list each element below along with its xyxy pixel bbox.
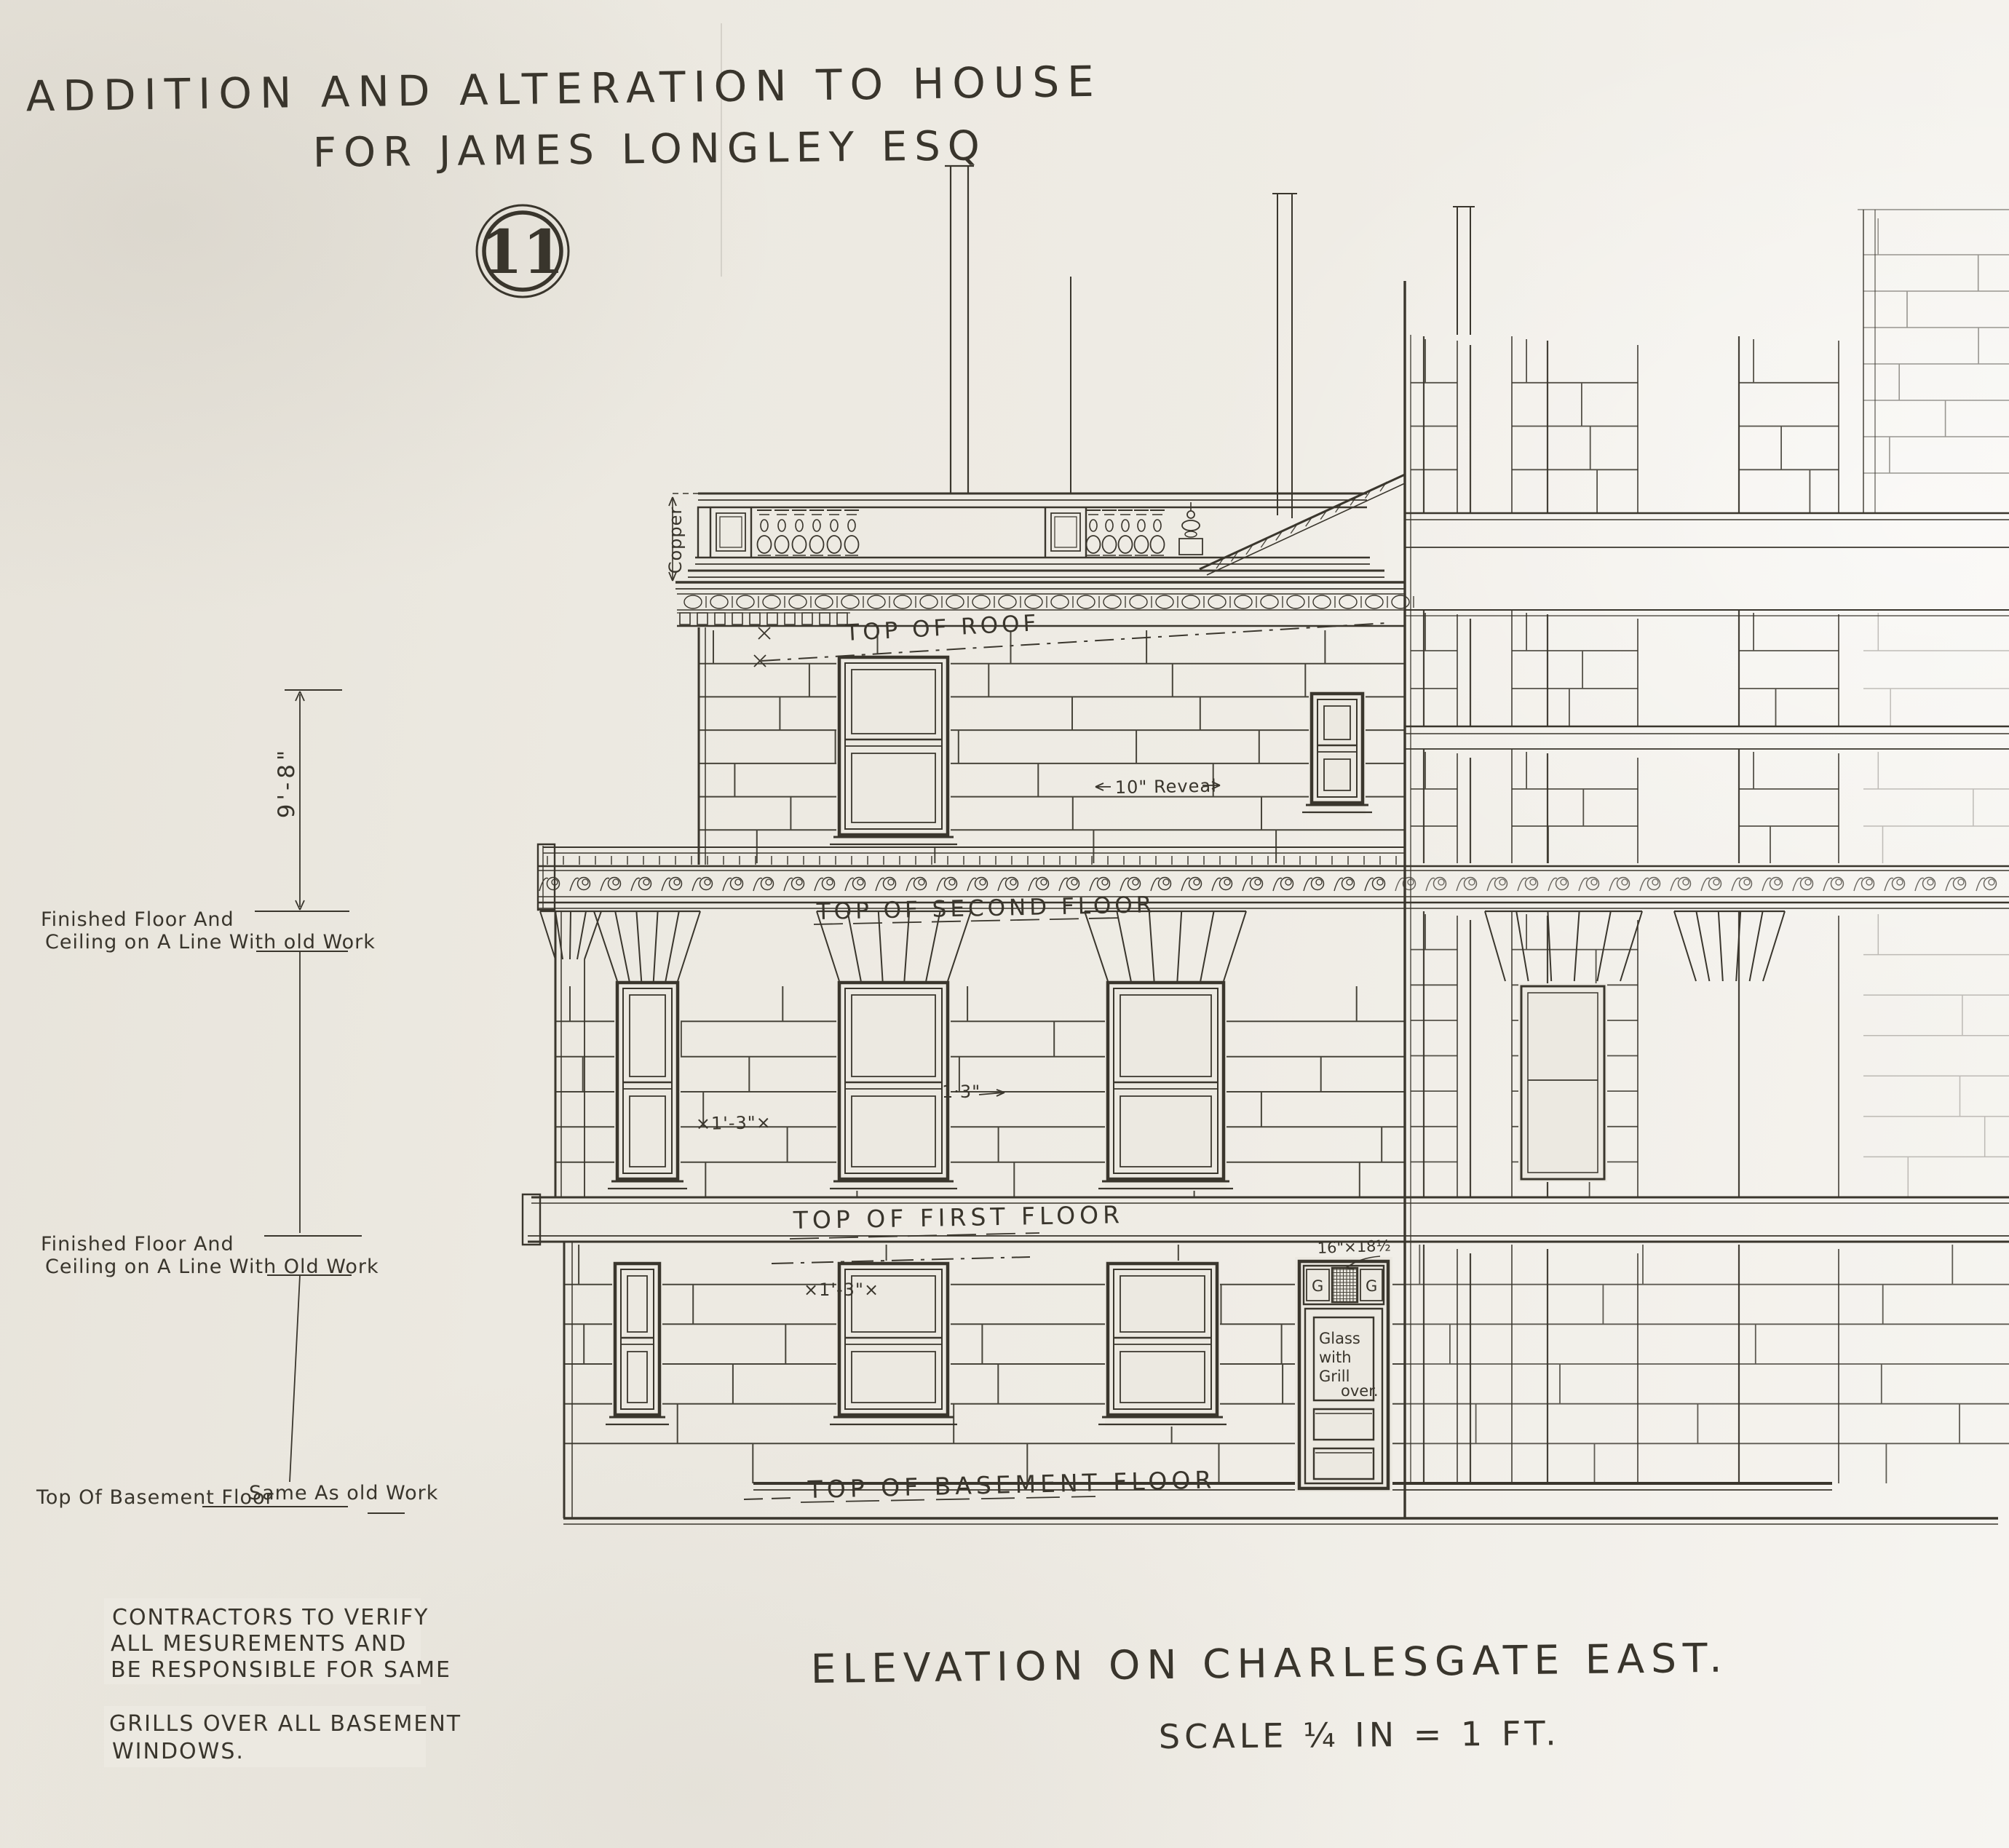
note-first-floor-line2: Ceiling on A Line With Old Work bbox=[45, 1256, 379, 1278]
grill-letter-right: G bbox=[1366, 1277, 1377, 1295]
title-line1: ADDITION AND ALTERATION TO HOUSE bbox=[25, 57, 1102, 122]
masonry-linework bbox=[523, 23, 2009, 1524]
scale-note: SCALE ¼ IN = 1 FT. bbox=[1159, 1713, 1561, 1756]
dim-1-3-first-floor: ×1'-3"× bbox=[696, 1112, 772, 1134]
contractors-note-line1: CONTRACTORS TO VERIFY bbox=[112, 1605, 429, 1630]
grills-note-line2: WINDOWS. bbox=[112, 1739, 245, 1764]
grill-letter-left: G bbox=[1312, 1277, 1323, 1295]
note-second-floor-line2: Ceiling on A Line With old Work bbox=[45, 931, 376, 953]
contractors-note-line2: ALL MESUREMENTS AND bbox=[111, 1631, 407, 1657]
top-of-first-floor-label: TOP OF FIRST FLOOR bbox=[792, 1200, 1124, 1234]
elevation-drawing: ADDITION AND ALTERATION TO HOUSE FOR JAM… bbox=[0, 0, 2009, 1848]
note-second-floor-line1: Finished Floor And bbox=[41, 908, 234, 931]
note-basement-right: Same As old Work bbox=[249, 1482, 438, 1504]
copper-label: Copper bbox=[665, 507, 686, 574]
title-line2: FOR JAMES LONGLEY ESQ bbox=[312, 122, 987, 177]
note-first-floor-line1: Finished Floor And bbox=[41, 1233, 234, 1256]
dim-1-3-basement: ×1'-3"× bbox=[804, 1280, 879, 1300]
door-glass-note-4: over. bbox=[1341, 1382, 1379, 1400]
top-of-basement-floor-label: TOP OF BASEMENT FLOOR bbox=[807, 1465, 1216, 1504]
grills-note-line1: GRILLS OVER ALL BASEMENT bbox=[109, 1711, 461, 1737]
drawing-number: 11 bbox=[481, 218, 564, 287]
door-glass-note-1: Glass bbox=[1319, 1330, 1360, 1347]
dim-9-8: 9'-8" bbox=[274, 747, 300, 818]
view-title: ELEVATION ON CHARLESGATE EAST. bbox=[810, 1635, 1729, 1692]
contractors-note-line3: BE RESPONSIBLE FOR SAME bbox=[111, 1657, 451, 1683]
blueprint-page: ADDITION AND ALTERATION TO HOUSE FOR JAM… bbox=[0, 0, 2009, 1848]
dim-1-3-right: 1·3" bbox=[942, 1082, 980, 1102]
reveal-dimension: 10" Reveal bbox=[1115, 776, 1217, 798]
door-glass-note-2: with bbox=[1319, 1349, 1352, 1366]
grille-size-label: 16"×18½ bbox=[1317, 1237, 1391, 1257]
note-basement-left: Top Of Basement Floor bbox=[36, 1486, 274, 1509]
